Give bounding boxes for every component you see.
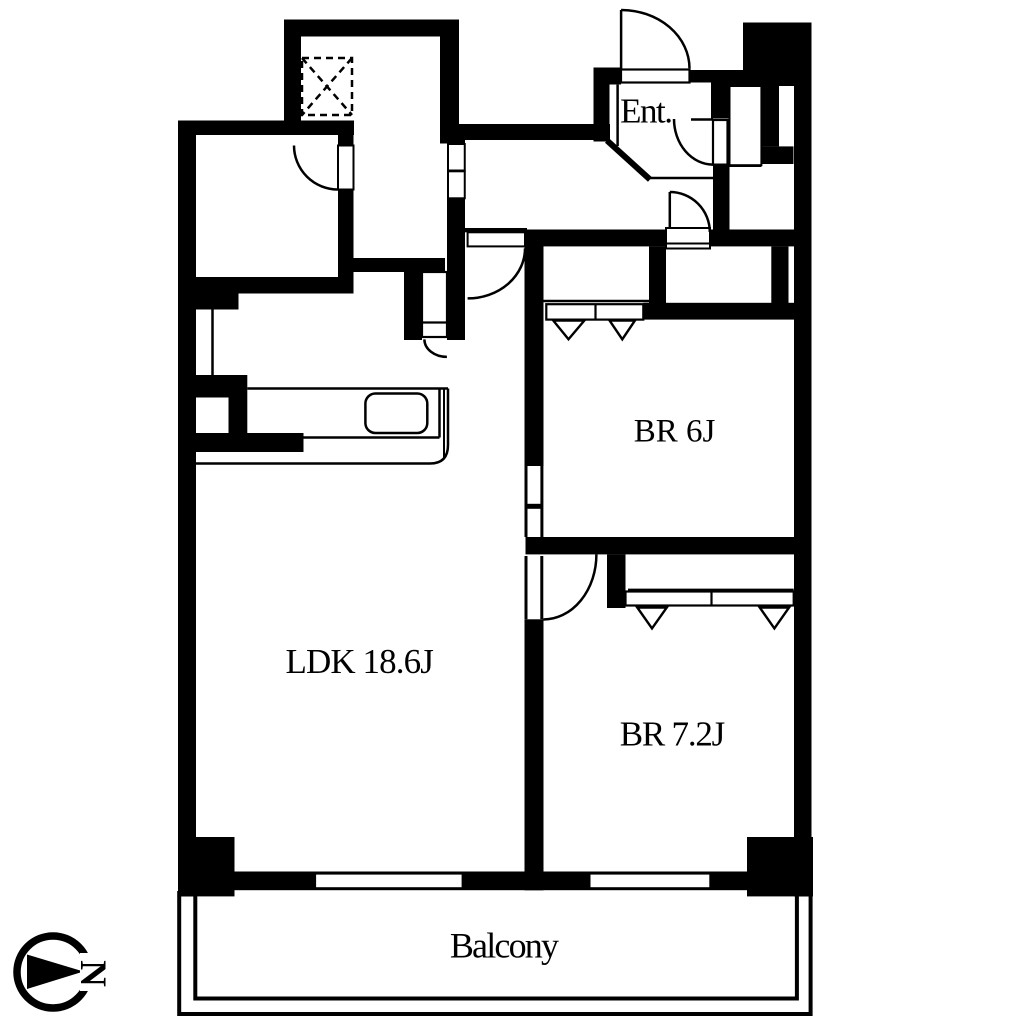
svg-text:LDK 18.6J: LDK 18.6J bbox=[285, 642, 433, 681]
svg-text:BR 6J: BR 6J bbox=[634, 414, 716, 450]
svg-text:BR 7.2J: BR 7.2J bbox=[620, 714, 725, 753]
svg-text:Balcony: Balcony bbox=[450, 925, 559, 965]
svg-text:N: N bbox=[72, 960, 113, 987]
svg-text:Ent.: Ent. bbox=[620, 92, 671, 131]
